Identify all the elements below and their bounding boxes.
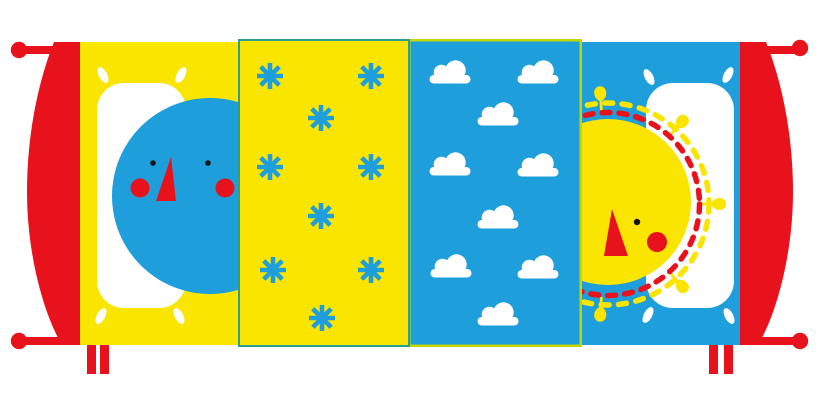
bed-right-post [740,40,808,349]
bed-left-knob-top [11,42,27,58]
snowflake-motif [257,63,283,89]
bed-illustration [0,0,820,410]
bed-leg-right-2 [724,340,733,374]
moon-eye-left [150,160,156,166]
bed-leg-left-2 [100,340,109,374]
snowflake-motif [358,257,384,283]
snowflake-motif [309,305,335,331]
snowflake-motif [358,154,384,180]
snowflake-motif [358,63,384,89]
bed-right-knob-bottom [792,333,808,349]
snowflake-motif [260,257,286,283]
bed-leg-left-1 [87,340,96,374]
sun-cheek [647,232,667,252]
panel-cloud-blanket [408,39,582,347]
snowflake-motif [308,203,334,229]
snowflake-blanket-fill [240,41,408,345]
bed-leg-right-1 [709,340,718,374]
snowflake-motif [308,105,334,131]
panel-snowflake-blanket [238,39,410,347]
moon-eye-right [205,160,211,166]
bed-left-knob-bottom [11,333,27,349]
bed-right-rail [740,42,793,345]
moon-cheek-left [131,179,150,198]
bed-left-post [11,42,80,349]
sun-eye [634,219,640,225]
moon-cheek-right [216,179,235,198]
bed-left-rail [27,42,80,345]
illustration-canvas [0,0,820,410]
bed-right-knob-top [792,40,808,56]
cloud-blanket-fill [411,42,580,345]
snowflake-motif [257,154,283,180]
